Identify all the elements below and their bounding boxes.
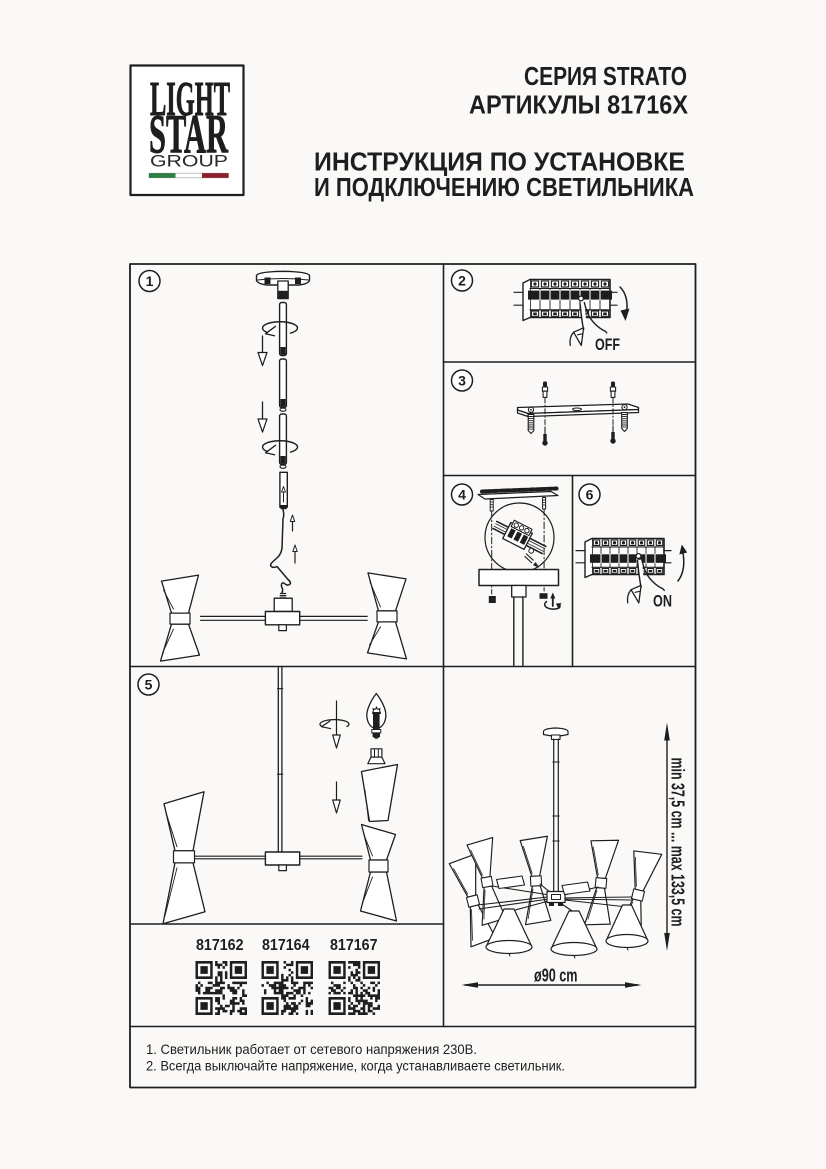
svg-text:5: 5 xyxy=(145,677,153,693)
svg-text:1. Светильник работает от сете: 1. Светильник работает от сетевого напря… xyxy=(146,1041,477,1057)
svg-text:ON: ON xyxy=(653,593,672,611)
svg-text:817167: 817167 xyxy=(330,937,378,954)
svg-text:АРТИКУЛЫ 81716X: АРТИКУЛЫ 81716X xyxy=(469,90,689,120)
svg-text:4: 4 xyxy=(458,487,466,503)
svg-text:GROUP: GROUP xyxy=(150,153,228,171)
svg-text:СЕРИЯ STRATO: СЕРИЯ STRATO xyxy=(524,61,687,91)
svg-text:6: 6 xyxy=(586,487,594,503)
svg-text:И ПОДКЛЮЧЕНИЮ СВЕТИЛЬНИКА: И ПОДКЛЮЧЕНИЮ СВЕТИЛЬНИКА xyxy=(314,172,694,202)
svg-text:3: 3 xyxy=(458,373,466,389)
svg-text:1: 1 xyxy=(146,273,154,289)
svg-text:OFF: OFF xyxy=(595,336,620,354)
svg-text:min 37,5 cm ... max 133,5 cm: min 37,5 cm ... max 133,5 cm xyxy=(668,758,688,927)
svg-text:817164: 817164 xyxy=(262,937,310,954)
svg-text:817162: 817162 xyxy=(196,937,244,954)
svg-text:2. Всегда выключайте напряжени: 2. Всегда выключайте напряжение, когда у… xyxy=(146,1058,565,1074)
svg-text:ø90 cm: ø90 cm xyxy=(534,966,578,986)
svg-text:2: 2 xyxy=(458,273,466,289)
